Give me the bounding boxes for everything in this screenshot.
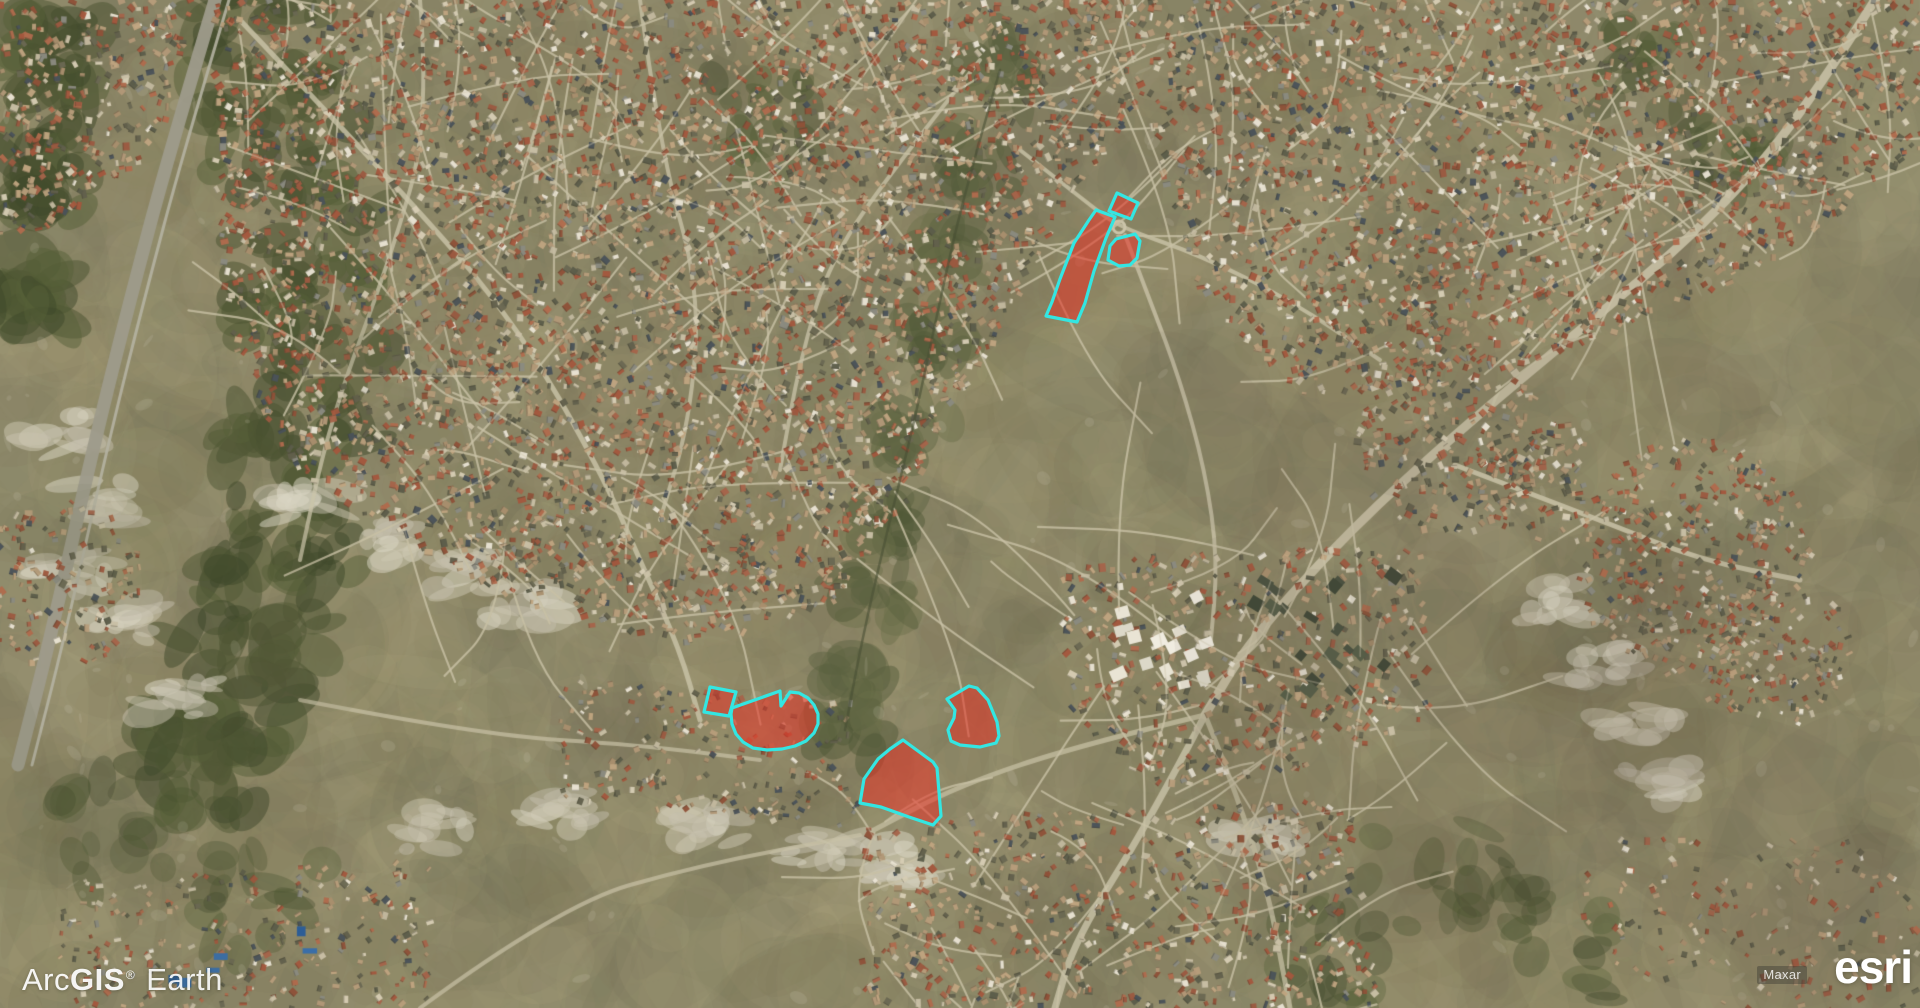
watermark-gis: GIS [70,962,125,997]
registered-mark: ® [126,968,135,982]
watermark-arc: Arc [22,962,70,997]
arcgis-earth-watermark: ArcGIS®Earth [22,962,223,998]
esri-logo: esri [1834,940,1912,994]
watermark-earth: Earth [146,962,223,997]
imagery-attribution: Maxar [1757,966,1807,984]
map-viewport: ArcGIS®Earth Maxar esri [0,0,1920,1008]
satellite-basemap[interactable] [0,0,1920,1008]
